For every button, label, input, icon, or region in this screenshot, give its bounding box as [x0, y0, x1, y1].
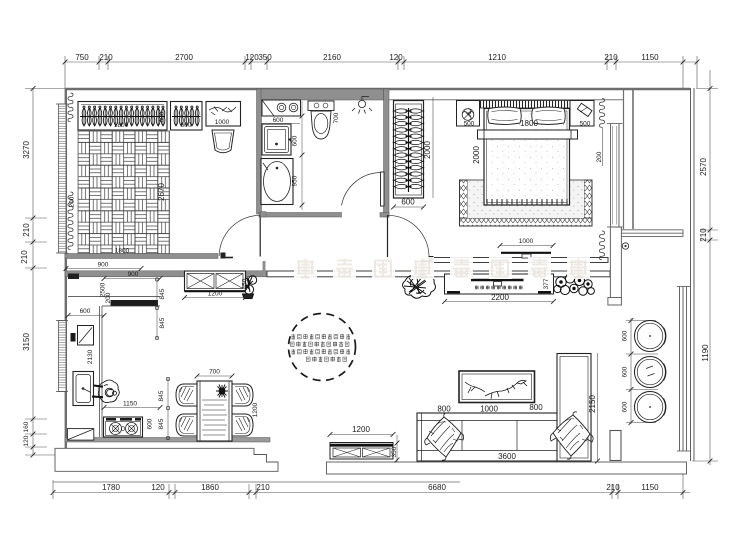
svg-text:2000: 2000: [423, 141, 432, 159]
svg-text:2570: 2570: [699, 158, 708, 176]
svg-text:1150: 1150: [123, 401, 137, 408]
svg-text:600: 600: [622, 366, 629, 377]
svg-text:1150: 1150: [641, 483, 659, 492]
svg-text:2150: 2150: [588, 395, 597, 413]
svg-text:2130: 2130: [87, 349, 94, 364]
svg-text:200: 200: [105, 292, 112, 303]
svg-text:1000: 1000: [480, 405, 498, 414]
svg-text:1800: 1800: [114, 122, 129, 129]
svg-text:2200: 2200: [491, 293, 509, 302]
svg-text:210: 210: [604, 53, 618, 62]
svg-text:1210: 1210: [488, 53, 506, 62]
svg-text:160: 160: [23, 421, 30, 432]
svg-text:1860: 1860: [201, 483, 219, 492]
svg-text:800: 800: [437, 405, 451, 414]
svg-text:500: 500: [464, 121, 475, 128]
svg-text:1800: 1800: [115, 248, 130, 255]
svg-text:2000: 2000: [472, 146, 481, 164]
svg-text:600: 600: [273, 117, 284, 124]
svg-text:845: 845: [158, 390, 165, 401]
svg-text:2160: 2160: [323, 53, 341, 62]
svg-text:6680: 6680: [428, 483, 446, 492]
svg-text:700: 700: [333, 112, 340, 123]
svg-text:3270: 3270: [22, 141, 31, 159]
svg-text:800: 800: [529, 403, 543, 412]
svg-text:1780: 1780: [102, 483, 120, 492]
svg-text:2670: 2670: [157, 183, 166, 201]
svg-text:210: 210: [99, 53, 113, 62]
svg-text:2700: 2700: [175, 53, 193, 62]
svg-text:120: 120: [23, 435, 30, 446]
svg-text:600: 600: [80, 308, 91, 315]
svg-text:600: 600: [147, 418, 154, 429]
svg-text:1200: 1200: [252, 402, 259, 417]
svg-text:450: 450: [242, 278, 249, 289]
svg-text:600: 600: [181, 122, 192, 129]
svg-text:700: 700: [209, 369, 220, 376]
svg-text:600: 600: [622, 401, 629, 412]
svg-text:1000: 1000: [519, 238, 534, 245]
svg-text:1190: 1190: [701, 344, 710, 362]
svg-text:210: 210: [256, 483, 270, 492]
svg-text:900: 900: [98, 262, 109, 269]
svg-text:210: 210: [606, 483, 620, 492]
svg-text:350: 350: [258, 53, 272, 62]
svg-text:600: 600: [622, 330, 629, 341]
svg-text:210: 210: [20, 250, 29, 264]
svg-text:1200: 1200: [208, 291, 223, 298]
svg-text:845: 845: [158, 418, 165, 429]
svg-text:3150: 3150: [22, 333, 31, 351]
svg-text:377: 377: [543, 278, 550, 289]
svg-text:845: 845: [159, 317, 166, 328]
svg-text:750: 750: [75, 53, 89, 62]
svg-text:1800: 1800: [520, 119, 538, 128]
svg-text:120: 120: [151, 483, 165, 492]
svg-text:1200: 1200: [352, 425, 370, 434]
svg-text:210: 210: [22, 223, 31, 237]
svg-text:845: 845: [159, 288, 166, 299]
svg-text:600: 600: [401, 198, 415, 207]
svg-text:210: 210: [699, 228, 708, 242]
svg-text:600: 600: [159, 111, 166, 122]
svg-text:120: 120: [245, 53, 259, 62]
svg-text:900: 900: [128, 271, 139, 278]
svg-text:3600: 3600: [498, 452, 516, 461]
svg-text:1150: 1150: [641, 53, 659, 62]
svg-text:950: 950: [292, 175, 299, 186]
svg-text:120: 120: [389, 53, 403, 62]
svg-text:600: 600: [292, 135, 299, 146]
svg-text:200: 200: [69, 196, 76, 207]
svg-text:200: 200: [596, 151, 603, 162]
svg-text:350: 350: [391, 446, 398, 457]
svg-text:1000: 1000: [215, 119, 230, 126]
svg-text:500: 500: [580, 121, 591, 128]
